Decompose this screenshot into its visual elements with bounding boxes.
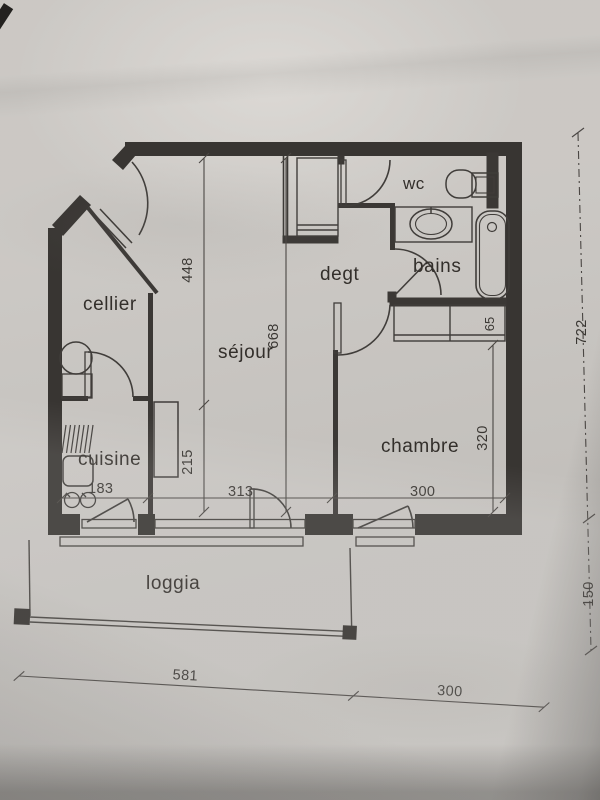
degt-wardrobe-icon: [297, 158, 338, 236]
kitchen-counter: [154, 402, 178, 477]
cellier-shelf: [62, 374, 92, 398]
bathtub-icon: [476, 211, 509, 299]
room-label-cellier: cellier: [83, 294, 137, 315]
room-label-degt: degt: [320, 264, 360, 285]
dim-label-300: 300: [410, 484, 435, 500]
dim-label-668: 668: [266, 323, 282, 348]
dim-label-150: 150: [581, 581, 597, 606]
loggia-side-left: [29, 540, 30, 616]
loggia-side-right: [350, 548, 352, 630]
wall-bottom-3: [305, 514, 353, 535]
dimline-bottom: [14, 671, 550, 713]
chambre-door-leaf: [334, 303, 341, 353]
wall-toilet-stub: [487, 153, 498, 208]
chambre-door-arc: [338, 305, 390, 355]
room-label-wc: wc: [402, 174, 425, 193]
wall-bottom-4: [415, 514, 522, 535]
cellier-door-arc: [88, 352, 133, 397]
sill-left: [60, 537, 303, 546]
wall-left: [48, 228, 62, 535]
wall-diagonal-lower: [52, 195, 91, 236]
wall-degt-stub: [283, 236, 338, 243]
wc-door-arc: [344, 160, 390, 206]
water-heater-icon: [60, 342, 92, 374]
floor-plan-photo: cellier cuisine séjour degt wc bains cha…: [0, 0, 600, 800]
dim-label-722: 722: [574, 319, 590, 344]
cuisine-loggia-door-arc: [128, 499, 134, 522]
floor-plan-drawing: cellier cuisine séjour degt wc bains cha…: [0, 0, 600, 800]
dim-label-65: 65: [482, 317, 497, 331]
room-label-chambre: chambre: [381, 436, 459, 457]
chambre-loggia-door-leaf: [358, 506, 408, 528]
wc-door-leaf: [341, 160, 346, 206]
loggia-post-right: [342, 625, 357, 640]
dim-label-448: 448: [180, 257, 196, 282]
dim-label-320: 320: [475, 425, 491, 450]
sill-right: [356, 537, 414, 546]
wall-bottom-2: [138, 514, 155, 535]
room-label-loggia: loggia: [146, 573, 200, 594]
wall-top: [125, 142, 522, 156]
room-label-cuisine: cuisine: [78, 449, 141, 470]
exterior-walls: [48, 142, 522, 535]
loggia-post-left: [14, 608, 31, 625]
dim-label-183: 183: [88, 481, 113, 497]
dim-label-313: 313: [228, 484, 253, 500]
room-label-bains: bains: [413, 256, 461, 277]
wall-cellier-diagonal: [88, 208, 157, 293]
dimline-722-150: [578, 133, 591, 650]
dim-label-300b: 300: [437, 683, 463, 700]
window-sejour: [155, 520, 305, 529]
wall-right: [506, 142, 522, 535]
windows: [60, 520, 415, 547]
entry-door-icon: [132, 162, 148, 235]
chambre-loggia-door-arc: [408, 506, 413, 528]
cuisine-loggia-door-leaf: [87, 499, 128, 522]
dim-label-581: 581: [172, 667, 198, 684]
wall-bottom-1: [48, 514, 80, 535]
dim-label-215: 215: [180, 449, 196, 474]
sejour-loggia-door-arc: [252, 489, 291, 528]
washbasin-icon: [395, 207, 472, 242]
